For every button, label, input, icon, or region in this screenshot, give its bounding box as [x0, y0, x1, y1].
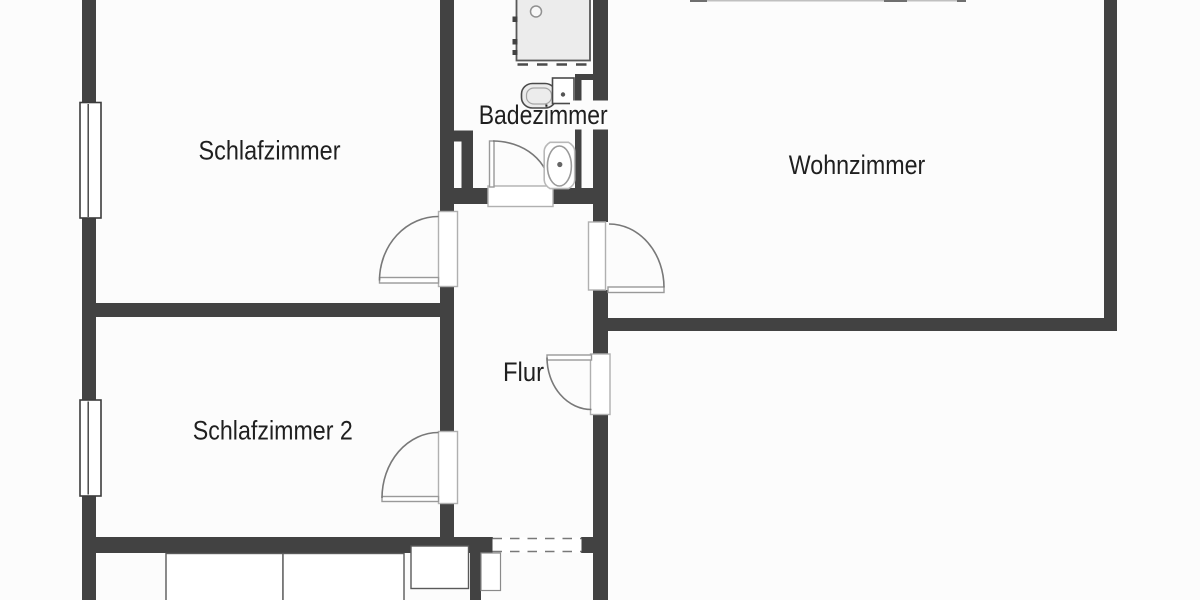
svg-text:Wohnzimmer: Wohnzimmer [789, 150, 926, 180]
svg-text:Flur: Flur [503, 357, 544, 387]
svg-text:Schlafzimmer: Schlafzimmer [199, 136, 341, 166]
svg-text:Schlafzimmer 2: Schlafzimmer 2 [193, 415, 353, 445]
svg-text:Badezimmer: Badezimmer [479, 100, 608, 130]
